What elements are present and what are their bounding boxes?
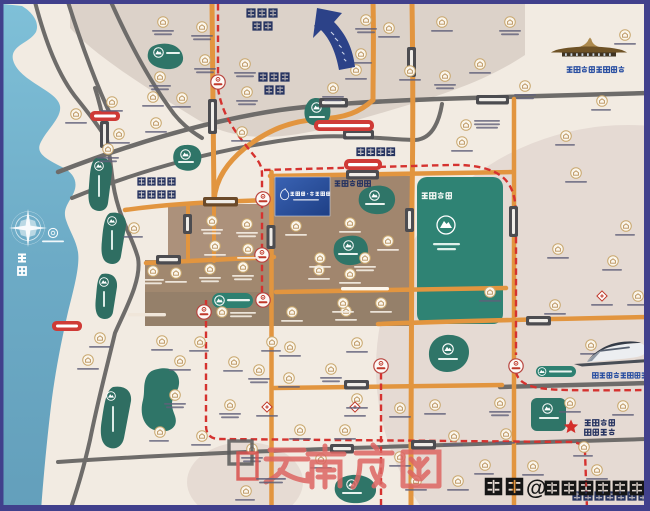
- svg-text:@: @: [526, 477, 546, 500]
